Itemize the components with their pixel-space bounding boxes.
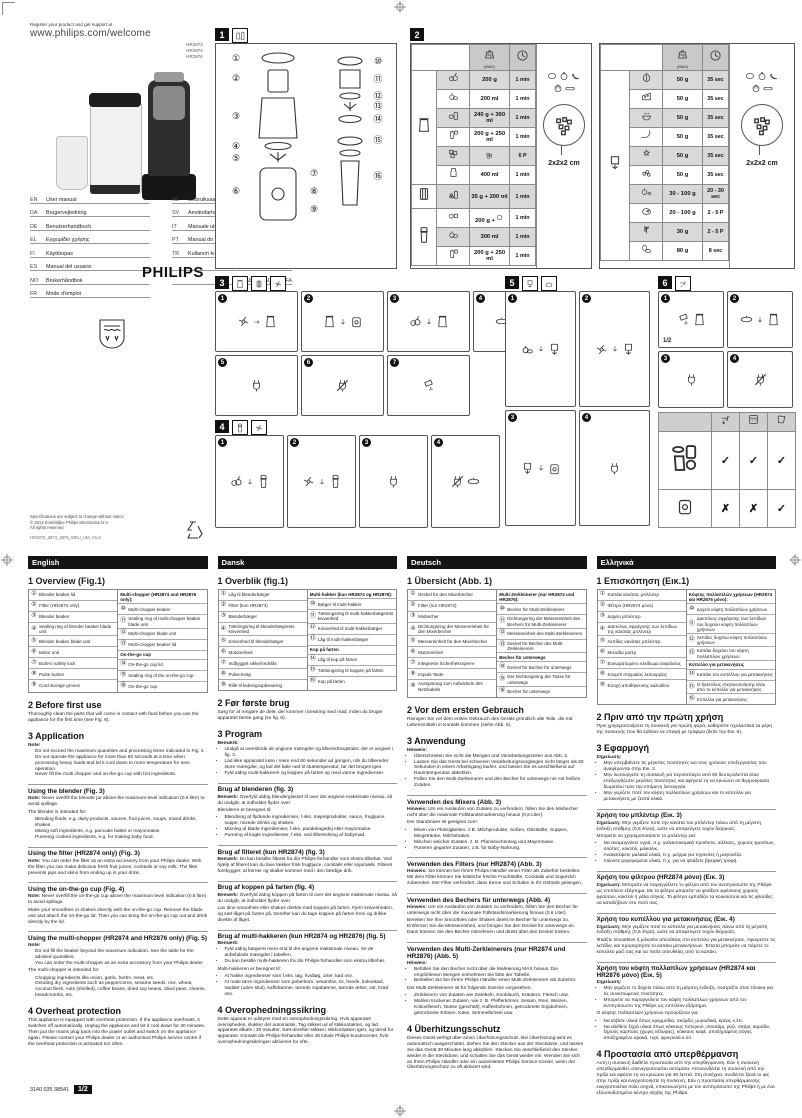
parts-group-title: Multi-Zerkleinerer (nur HR2874 und HR287… [497, 590, 585, 604]
language-code: SV [172, 210, 188, 216]
part-label: Kop på farten [318, 678, 396, 685]
onion-icon [750, 82, 762, 94]
language-label: Benutzerhandbuch [46, 224, 150, 230]
part-number: ⑥ [29, 650, 39, 655]
step-number: 1 [218, 438, 227, 447]
time-cell: 1 min [510, 228, 536, 247]
ingredient-cell [630, 128, 663, 147]
part-number: ② [29, 603, 39, 608]
parts-column-left: ①Deckel für den Mixerbecher②Filter (nur … [408, 590, 496, 697]
part-number: ⑤ [219, 639, 229, 644]
part-row: ⑬Καπάκι δοχείου του κόφτη πολλαπλών χρήσ… [687, 647, 775, 660]
bullet-item: At male tørre ingredienser som peberkorn… [225, 980, 398, 998]
part-row: ③Mixbecher [408, 612, 496, 623]
part-label: Blender beaker lid [39, 591, 117, 598]
fruit-icon [447, 71, 460, 84]
part-number: ⑯ [308, 679, 318, 684]
ice-cubes-icon [485, 151, 494, 160]
part-number: ⑨ [408, 684, 418, 689]
step-box: 6 [301, 355, 384, 416]
bullet-item: Überschreiten Sie nicht die Mengen und V… [414, 754, 587, 760]
step-number: 3 [362, 438, 371, 447]
bullet-list: Fyld aldrig bægeret mere end til det ang… [218, 947, 398, 965]
step-box: 1 [215, 291, 298, 352]
quantity-cell: 400 ml [470, 166, 510, 185]
step-illustration [236, 314, 278, 329]
support-url: www.philips.com/welcome [30, 28, 151, 39]
part-callout-number: ⑦ [310, 168, 318, 178]
plug-icon [249, 378, 264, 393]
part-row: ⑤Blender beaker blade unit [29, 636, 117, 647]
part-number: ⑧ [219, 672, 229, 677]
step-illustration [408, 314, 450, 329]
part-row: ⑦Ενσωματωμένο κλείδωμα ασφαλείας [598, 658, 686, 669]
step-number: 1 [661, 294, 670, 303]
part-number: ② [598, 603, 608, 608]
tap-icon [678, 279, 688, 289]
nuts-icon [640, 166, 653, 179]
part-callout-number: ⑯ [373, 171, 382, 181]
spices-icon [640, 147, 653, 160]
onion-icon [552, 82, 564, 94]
on-the-go-cup-icon [232, 420, 248, 435]
part-label: Καπάκι κανάτας μπλέντερ [608, 591, 686, 598]
paragraph: Αυτή η συσκευή διαθέτει προστασία από τη… [597, 1061, 777, 1096]
step-illustration [607, 461, 622, 476]
sub-heading: Using the on-the-go cup (Fig. 4) [28, 882, 208, 893]
table-corner [601, 45, 663, 71]
figure6-header: 6 [658, 276, 691, 291]
svg-text:Kg: Kg [680, 53, 684, 57]
step-number: 3 [390, 294, 399, 303]
philips-shield-logo [98, 318, 126, 355]
filter-icon [415, 185, 433, 203]
parts-table: ①Blender beaker lid②Filter (HR2874 only)… [28, 589, 208, 693]
blender-jar-icon [232, 276, 248, 291]
part-callout-number: ② [232, 73, 240, 83]
part-number: ⑯ [118, 684, 128, 689]
bullet-list: Do not exceed the maximum quantities and… [28, 749, 208, 779]
dishwasher-icon [740, 413, 768, 432]
part-number: ⑮ [308, 668, 318, 673]
part-callout-number: ⑮ [373, 135, 382, 145]
time-cell: 1 min [510, 71, 536, 90]
sub-heading: Verwenden des Mixers (Abb. 3) [407, 795, 587, 806]
chopped-pieces-icon [552, 113, 576, 137]
sub-heading: Verwenden des Bechers für unterwegs (Abb… [407, 893, 587, 904]
part-label: On-the-go cup [128, 683, 206, 690]
language-index-row: FRMode d'emploi [30, 285, 150, 299]
dishwasher-icon [747, 413, 760, 426]
part-row: ⑦Built-in safety lock [29, 658, 117, 669]
magnifier-detail [741, 104, 783, 146]
magnifier-detail [543, 104, 585, 146]
note-label: Σημείωση: [597, 980, 777, 985]
multi-chopper-icon [522, 276, 538, 291]
part-row: ⑩Multi-chopper beaker [118, 604, 206, 615]
language-code: TR [172, 251, 188, 257]
multi-chopper-icon [547, 342, 562, 357]
step-box: 2 [301, 291, 384, 352]
arrow-down-icon [536, 463, 546, 473]
blade-unit-icon [236, 314, 251, 329]
part-row: ⑥Motor unit [29, 647, 117, 658]
bullet-item: Να αναμειγνύετε υγρά, π.χ. γαλακτοκομικά… [604, 841, 777, 853]
step-number: 5 [218, 358, 227, 367]
part-label: Sealing ring of multi-chopper beaker bla… [128, 615, 206, 627]
part-number: ⑨ [29, 683, 39, 688]
step-box: 1 [505, 291, 576, 407]
quantity-cell: 200 g + [470, 209, 510, 228]
part-label: Tætningsring til koppen på farten [318, 667, 396, 674]
figure3-number: 3 [215, 276, 229, 289]
quantity-cell: 50 g [663, 90, 703, 109]
part-row: ①Låg til blenderbæger [219, 590, 307, 601]
part-number: ④ [598, 627, 608, 632]
part-label: Impuls-Taste [418, 671, 496, 678]
multi-chopper-icon [520, 461, 535, 476]
blender-jar-icon [263, 314, 278, 329]
bullet-item: You can order the multi-chopper as an ex… [35, 961, 208, 967]
print-code: 3140 035 38541 [30, 1087, 69, 1093]
part-number: ⑩ [118, 607, 128, 612]
part-number: ⑬ [497, 643, 507, 648]
registration-mark [789, 554, 801, 566]
part-number: ⑩ [308, 602, 318, 607]
arrow-down-icon [755, 315, 765, 325]
tomato-icon [558, 70, 570, 82]
step-illustration [322, 314, 364, 329]
section-english: English1 Overview (Fig.1)①Blender beaker… [28, 556, 208, 1108]
note-paragraph: Note: Never overfill the blender jar abo… [28, 796, 208, 808]
max-weight-header: Kg(MAX) [663, 45, 703, 71]
figure6-icons [672, 276, 691, 291]
note-label: Hinweis: [407, 748, 587, 753]
bullet-item: Lad ikke apparatet køre i mere end 60 se… [225, 759, 398, 771]
arrow-down-icon [245, 477, 255, 487]
language-index-row: FIKäyttöopas [30, 244, 150, 258]
pour-icon [676, 312, 691, 327]
filter-icon [254, 279, 264, 289]
part-row: ⑯On-the-go cup [118, 682, 206, 692]
ingredient-cell [630, 71, 663, 90]
section-heading: 2 Før første brug [218, 698, 398, 708]
part-callout-number: ⑪ [373, 74, 382, 84]
bullet-item: Undgå at overskride de angivne mængder o… [225, 747, 398, 759]
bullet-item: Never fill the multi chopper and on-the-… [35, 772, 208, 778]
step-number: 3 [508, 413, 517, 422]
bullet-item: Mahlen trockener Zutaten, wie z. B. Pfef… [414, 999, 587, 1017]
part-row: ⑫Multi-chopper blade unit [118, 629, 206, 640]
part-row: ⑤Knivenhed til blenderbæger [219, 636, 307, 647]
part-number: ④ [219, 627, 229, 632]
vegetable-icons [541, 70, 587, 94]
part-label: Pulse button [39, 671, 117, 678]
step-box: 3 [387, 291, 470, 352]
time-cell: 6 P [510, 147, 536, 166]
fruit-ice-icon [447, 209, 460, 222]
part-row: ③Δοχείο μπλέντερ [598, 612, 686, 623]
part-row: ②Filter (HR2874 only) [29, 601, 117, 612]
damp-cloth-icon [768, 413, 796, 432]
parts-group-title: Kop på farten [308, 646, 396, 655]
onion-garlic-icon [640, 185, 653, 198]
step-illustration [594, 342, 636, 357]
section-greek: Ελληνικά1 Επισκόπηση (Εικ.1)①Καπάκι κανά… [597, 556, 777, 1108]
step-illustration [249, 378, 264, 393]
arrow-right-icon [252, 317, 262, 327]
check-mark: ✓ [768, 432, 796, 490]
part-label: Ο δακτύλιος στεγανοποίησης είναι από το … [697, 681, 775, 693]
part-number: ⑭ [497, 665, 507, 670]
bottle-cap-image [154, 72, 184, 82]
on-the-go-cup-icon [415, 226, 433, 244]
language-index-row: DABrugervejledning [30, 204, 150, 218]
cube-size-annotation: 2x2x2 cm [536, 44, 591, 268]
bullet-item: Μην γεμίζετε το δοχείο πάνω από τη μέγισ… [604, 986, 777, 998]
bullet-item: Purering af kogte ingredienser, f.eks. v… [225, 833, 398, 839]
part-label: Filter (kun HR2874) [229, 602, 307, 609]
part-row: ③Blenderbæger [219, 612, 307, 623]
part-label: Der Dichtungsring der Tasse für unterweg… [507, 673, 585, 685]
step-number: 1 [218, 294, 227, 303]
language-code: FR [30, 291, 46, 297]
smoothie-image [153, 86, 185, 120]
part-row: ⑪Sealing ring of multi-chopper beaker bl… [118, 615, 206, 628]
part-number: ⑦ [598, 661, 608, 666]
damp-cloth-icon [775, 413, 788, 426]
bullet-item: Du kan bestille multi-hakkeren fra din P… [225, 959, 398, 965]
on-the-go-cup-icon [256, 474, 271, 489]
step-number: 4 [434, 438, 443, 447]
paragraph: Ο κόφτης πολλαπλών χρήσεων προορίζεται γ… [597, 1011, 777, 1017]
figure6-number: 6 [658, 276, 672, 289]
time-cell: 35 sec [703, 166, 729, 185]
vegetables-icon [520, 342, 535, 357]
language-sections: English1 Overview (Fig.1)①Blender beaker… [28, 556, 776, 1108]
note-label: Bemærk: [218, 941, 398, 946]
section-heading: 3 Application [28, 731, 208, 741]
ingredient-cell [437, 166, 470, 185]
part-row: ③Blender beaker [29, 612, 117, 623]
bullet-list: At hakke ingredienser som f.eks. løg, hv… [218, 974, 398, 998]
part-number: ③ [408, 614, 418, 619]
recycling-icon [182, 520, 204, 545]
part-row: ④Sealing ring of blender beaker blade un… [29, 623, 117, 636]
on-the-go-cup-icon [328, 474, 343, 489]
quantity-cell [470, 147, 510, 166]
step-illustration [520, 461, 562, 476]
vegetables-icon [447, 90, 460, 103]
smoothie-icon [447, 128, 460, 141]
part-row: ⑧Impuls-Taste [408, 669, 496, 680]
overview-title: 1 Übersicht (Abb. 1) [407, 576, 587, 586]
section-deutsch: Deutsch1 Übersicht (Abb. 1)①Deckel für d… [407, 556, 587, 1108]
part-row: ⑮Ο δακτύλιος στεγανοποίησης είναι από το… [687, 681, 775, 694]
parts-column-left: ①Låg til blenderbæger②Filter (kun HR2874… [219, 590, 307, 690]
step-number: 7 [390, 358, 399, 367]
language-code: EN [30, 197, 46, 203]
quantity-cell: 30 g [663, 223, 703, 242]
part-label: Built-in safety lock [39, 660, 117, 667]
cleaning-instructions-table: ✓✓✓✗✗✓ [658, 412, 796, 528]
part-row: ⑨Εσοχή αποθήκευσης καλωδίου [598, 680, 686, 690]
part-callout-number: ⑧ [310, 186, 318, 196]
section-heading: 2 Before first use [28, 700, 208, 710]
plug-icon [684, 372, 699, 387]
arrow-down-icon [536, 344, 546, 354]
part-row: ⑬Låg til multi-hakkerbæger [308, 635, 396, 646]
cleaning-table: ✓✓✓✗✗✓ [658, 412, 796, 528]
part-row: ⑪Δακτύλιος σφράγισης των λεπίδων του δοχ… [687, 615, 775, 634]
motor-unit-icon [674, 495, 696, 517]
quantity-cell: 240 g + 360 ml [470, 109, 510, 128]
part-row: ⑨Cord storage groove [29, 680, 117, 690]
no-plug-icon [335, 378, 350, 393]
bullet-list: Do not fill the beaker beyond the maximu… [28, 949, 208, 967]
part-number: ⑯ [497, 689, 507, 694]
time-cell: 1 min [510, 90, 536, 109]
bullet-item: Λιώνετε μαγειρεμένα υλικά, π.χ. για να φ… [604, 859, 777, 865]
part-label: Låg til blenderbæger [229, 591, 307, 598]
note-label: Σημείωση: [597, 755, 777, 760]
check-mark: ✓ [740, 432, 768, 490]
step-illustration [229, 474, 271, 489]
part-row: ⑨Rille til ledningsopbevaring [219, 680, 307, 690]
model-numbers: HR2872 HR2874 HR2876 [186, 42, 203, 60]
part-row: ⑥Motorenhed [219, 647, 307, 658]
paragraph: Dette apparat er udstyret med en overoph… [218, 1017, 398, 1047]
part-label: Blenderbæger [229, 613, 307, 620]
step-illustration [739, 312, 781, 327]
register-line: Register your product and get support at [30, 22, 151, 27]
multi-chopper-icon [621, 342, 636, 357]
chopper-quantity-panel: Kg(MAX)50 g35 sec50 g35 sec50 g35 sec50 … [599, 43, 795, 269]
meat-icon [640, 204, 653, 217]
part-row: ⑭Καπάκι του κυπέλλου για μετακινήσεις [687, 670, 775, 681]
parts-group-title: Κόφτης πολλαπλών χρήσεων (HR2874 και HR2… [687, 590, 775, 604]
part-label: Indbygget sikkerhedslås [229, 660, 307, 667]
bullet-item: Pureeing cooked ingredients, e.g. for ma… [35, 835, 208, 841]
figure5-number: 5 [505, 276, 519, 289]
language-label: Brukerhåndbok [46, 278, 150, 284]
bullet-list: Befüllen Sie den Becher nicht über die M… [407, 967, 587, 985]
part-number: ① [598, 592, 608, 597]
figure2-header: 2 [410, 28, 424, 41]
part-number: ⑭ [308, 657, 318, 662]
step-number: 3 [661, 354, 670, 363]
language-list-left: ENUser manualDABrugervejledningDEBenutze… [30, 190, 150, 298]
part-label: Motorenhed [229, 649, 307, 656]
arrow-down-icon [317, 477, 327, 487]
section-heading: 3 Anwendung [407, 736, 587, 746]
note-label: Hinweis: [407, 961, 587, 966]
part-row: ⑭On-the-go cup lid [118, 660, 206, 671]
part-callout-number: ④ [232, 141, 240, 151]
part-row: ④Tætningsring til blenderbægerets kniven… [219, 623, 307, 636]
ice-cubes-icon [447, 147, 460, 160]
paragraph: Μπορείτε να χρησιμοποιήσετε το μπλέντερ … [597, 834, 777, 840]
bullet-item: Μην λειτουργείτε τη συσκευή για περισσότ… [604, 773, 777, 791]
step-box: 4 [579, 410, 650, 526]
paragraph: Thoroughly clean the parts that will com… [28, 712, 208, 724]
note-paragraph: Σημείωση: Μπορείτε να παραγγείλετε το φί… [597, 883, 777, 907]
parts-group-title: Multi-chopper (HR2874 and HR2876 only): [118, 590, 206, 604]
part-number: ③ [598, 614, 608, 619]
rice-icon [640, 109, 653, 122]
part-label: Aussparung zum Aufwickeln des Netzkabels [418, 680, 496, 692]
quantity-cell: 20 - 100 g [663, 204, 703, 223]
fruit-icon [229, 474, 244, 489]
bullet-list: Undgå at overskride de angivne mængder o… [218, 747, 398, 777]
part-row: ⑫Λεπίδες δοχείου κόφτη πολλαπλών χρήσεων [687, 634, 775, 647]
bullet-item: Lassen Sie das Gerät bei schweren Verarb… [414, 760, 587, 778]
part-row: ②Φίλτρο (HR2874 μόνο) [598, 601, 686, 612]
part-row: ①Deckel für den Mixerbecher [408, 590, 496, 601]
blade-unit-icon [594, 342, 609, 357]
time-cell: 35 sec [703, 109, 729, 128]
bullet-item: Μην υπερβαίνετε τις μέγιστες ποσότητες κ… [604, 761, 777, 773]
time-header [510, 45, 536, 71]
part-label: Καπάκι δοχείου του κόφτη πολλαπλών χρήσε… [697, 647, 775, 659]
sausage-icon [541, 276, 557, 291]
check-mark: ✓ [768, 490, 796, 528]
overview-title: 1 Overblik (fig.1) [218, 576, 398, 586]
motor-unit-icon [659, 490, 712, 528]
section-heading: 3 Program [218, 729, 398, 739]
note-label: Note: [28, 743, 208, 748]
blender-quantity-table: Kg(MAX)200 g1 min200 ml1 min240 g + 360 … [411, 44, 536, 268]
part-label: Blender beaker blade unit [39, 638, 117, 645]
ingredient-cell [437, 71, 470, 90]
bullet-list: Να αναμειγνύετε υγρά, π.χ. γαλακτοκομικά… [597, 841, 777, 865]
quantity-cell: 50 g [663, 109, 703, 128]
blender-lid-image [89, 93, 141, 107]
part-row: ⑩Δοχείο κόφτη πολλαπλών χρήσεων [687, 604, 775, 615]
paragraph: This appliance is equipped with overheat… [28, 1018, 208, 1048]
part-label: Deckel für den Mixerbecher [418, 591, 496, 598]
bullet-item: Blendning af flydende ingredienser, f.ek… [225, 815, 398, 827]
language-label: User manual [46, 197, 150, 203]
part-row: ⑧Pulse button [29, 669, 117, 680]
part-number: ① [29, 592, 39, 597]
part-row: ①Καπάκι κανάτας μπλέντερ [598, 590, 686, 601]
quantity-cell: 50 g [663, 71, 703, 90]
blender-jar-image [90, 102, 142, 194]
sub-heading: Using the filter (HR2874 only) (Fig. 3) [28, 847, 208, 858]
quantity-table: Kg(MAX)200 g1 min200 ml1 min240 g + 360 … [411, 44, 536, 266]
part-number: ⑬ [118, 642, 128, 647]
part-number: ③ [29, 614, 39, 619]
parts-column-right: Multi-Zerkleinerer (nur HR2874 und HR287… [496, 590, 585, 697]
note-paragraph: Note: Never overfill the on-the-go cup a… [28, 894, 208, 906]
milk-icon [447, 166, 460, 179]
part-row: ⑮Der Dichtungsring der Tasse für unterwe… [497, 673, 585, 686]
figure1-exploded-view: ①②③④⑤⑥⑦⑧⑨⑩⑪⑫⑬⑭⑮⑯ [215, 43, 397, 269]
registration-mark [1, 554, 13, 566]
step-box: 11/2 [658, 291, 724, 348]
quantity-cell: 200 ml [470, 90, 510, 109]
cucumber-icon [762, 82, 774, 94]
step-number: 4 [476, 294, 485, 303]
time-cell: 35 sec [703, 128, 729, 147]
part-label: Sealing ring of blender beaker blade uni… [39, 623, 117, 635]
part-number: ⑩ [497, 607, 507, 612]
paragraph: Make your smoothies or shakes directly w… [28, 908, 208, 926]
parts-column-right: Multi-chopper (HR2874 and HR2876 only):⑩… [117, 590, 206, 692]
blender-jar-icon [415, 116, 433, 134]
part-number: ⑬ [687, 651, 697, 656]
